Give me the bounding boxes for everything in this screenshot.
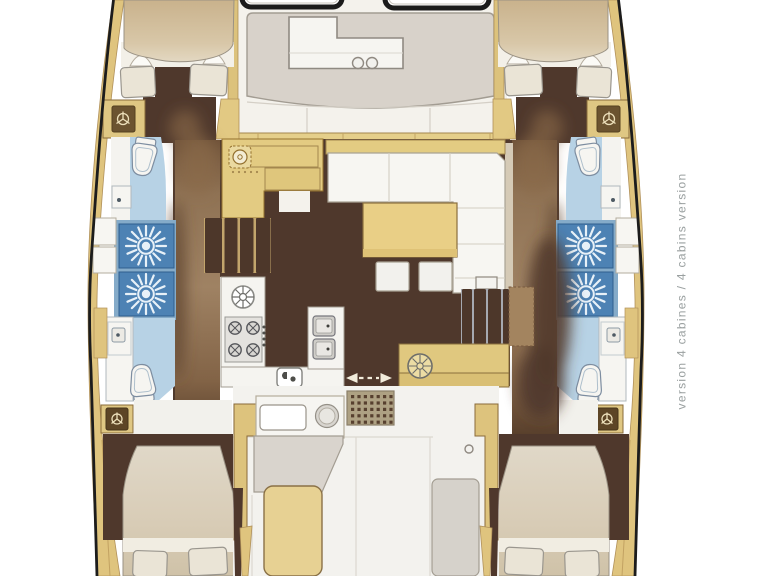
svg-text:version 4 cabines / 4 cabins v: version 4 cabines / 4 cabins version xyxy=(675,173,689,410)
